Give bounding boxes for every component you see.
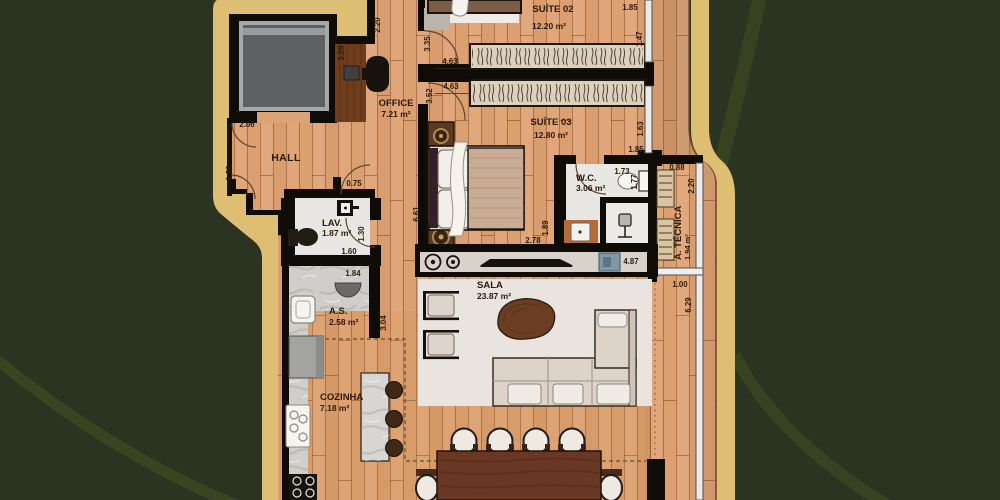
svg-text:0.75: 0.75 xyxy=(346,179,362,188)
svg-text:1.85: 1.85 xyxy=(622,3,638,12)
svg-text:1.63: 1.63 xyxy=(636,121,645,137)
svg-text:4.63: 4.63 xyxy=(443,82,459,91)
svg-text:3.09: 3.09 xyxy=(337,45,346,61)
svg-text:6.61: 6.61 xyxy=(412,206,421,222)
svg-text:SALA: SALA xyxy=(477,280,503,291)
svg-text:1.50: 1.50 xyxy=(225,165,234,181)
svg-text:23.87 m²: 23.87 m² xyxy=(477,291,511,301)
svg-text:3.52: 3.52 xyxy=(425,88,434,104)
svg-text:1.30: 1.30 xyxy=(357,226,366,242)
svg-text:1.00: 1.00 xyxy=(672,280,688,289)
svg-text:2.20: 2.20 xyxy=(373,17,382,33)
svg-text:COZINHA: COZINHA xyxy=(320,392,363,403)
svg-text:4.63: 4.63 xyxy=(442,57,458,66)
svg-text:4.87: 4.87 xyxy=(623,257,638,266)
svg-text:2.06: 2.06 xyxy=(239,120,255,129)
svg-text:1.47: 1.47 xyxy=(635,31,644,46)
svg-text:SUÍTE 02: SUÍTE 02 xyxy=(532,4,573,15)
svg-text:12.80 m²: 12.80 m² xyxy=(534,130,568,140)
svg-text:1.77: 1.77 xyxy=(630,174,639,189)
svg-text:1.73: 1.73 xyxy=(614,167,630,176)
svg-text:1.89: 1.89 xyxy=(541,220,550,236)
svg-text:3.35: 3.35 xyxy=(423,36,432,52)
svg-text:SUÍTE 03: SUÍTE 03 xyxy=(530,117,571,128)
svg-text:0.88: 0.88 xyxy=(669,163,685,172)
svg-text:2.58 m²: 2.58 m² xyxy=(329,317,358,327)
svg-text:3.06 m²: 3.06 m² xyxy=(576,183,605,193)
svg-text:6.29: 6.29 xyxy=(684,297,693,313)
svg-text:A.S.: A.S. xyxy=(329,306,347,317)
svg-text:2.20: 2.20 xyxy=(687,178,696,194)
svg-text:1.84: 1.84 xyxy=(345,269,361,278)
svg-text:12.20 m²: 12.20 m² xyxy=(532,21,566,31)
svg-text:3.04: 3.04 xyxy=(379,315,388,331)
svg-text:7.18 m²: 7.18 m² xyxy=(320,403,349,413)
svg-text:1.94 m²: 1.94 m² xyxy=(683,234,692,260)
svg-text:1.85: 1.85 xyxy=(628,145,644,154)
svg-text:1.60: 1.60 xyxy=(341,247,357,256)
svg-text:HALL: HALL xyxy=(271,152,301,164)
svg-text:7.21 m²: 7.21 m² xyxy=(381,109,410,119)
svg-text:OFFICE: OFFICE xyxy=(379,98,414,109)
svg-text:1.87 m²: 1.87 m² xyxy=(322,228,351,238)
svg-text:2.78: 2.78 xyxy=(525,236,541,245)
